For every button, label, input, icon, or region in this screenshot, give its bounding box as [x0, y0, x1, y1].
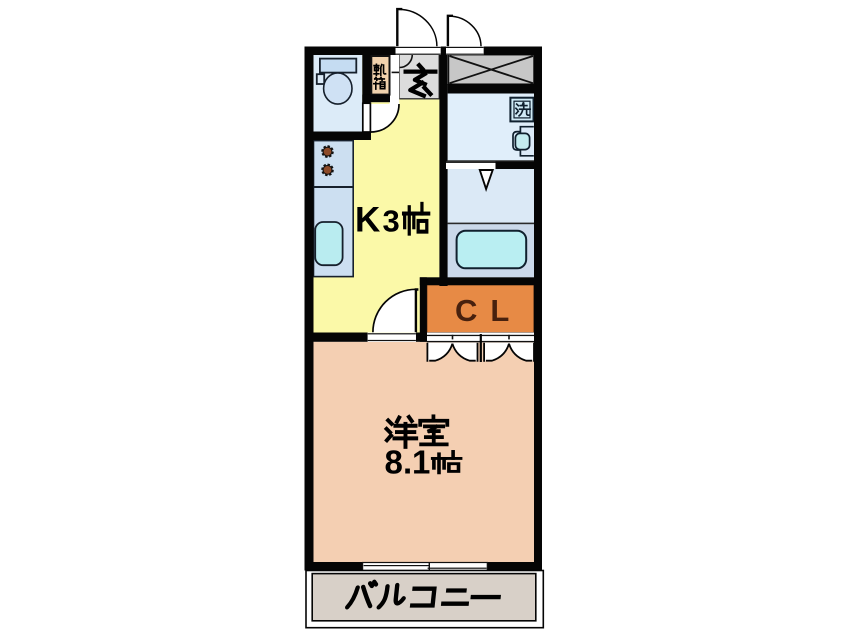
- svg-text:8: 8: [385, 444, 403, 481]
- svg-text:1: 1: [412, 444, 430, 481]
- svg-text:K: K: [355, 201, 380, 240]
- svg-text:.: .: [403, 444, 412, 481]
- svg-text:3: 3: [383, 204, 400, 239]
- svg-text:CL: CL: [455, 293, 522, 328]
